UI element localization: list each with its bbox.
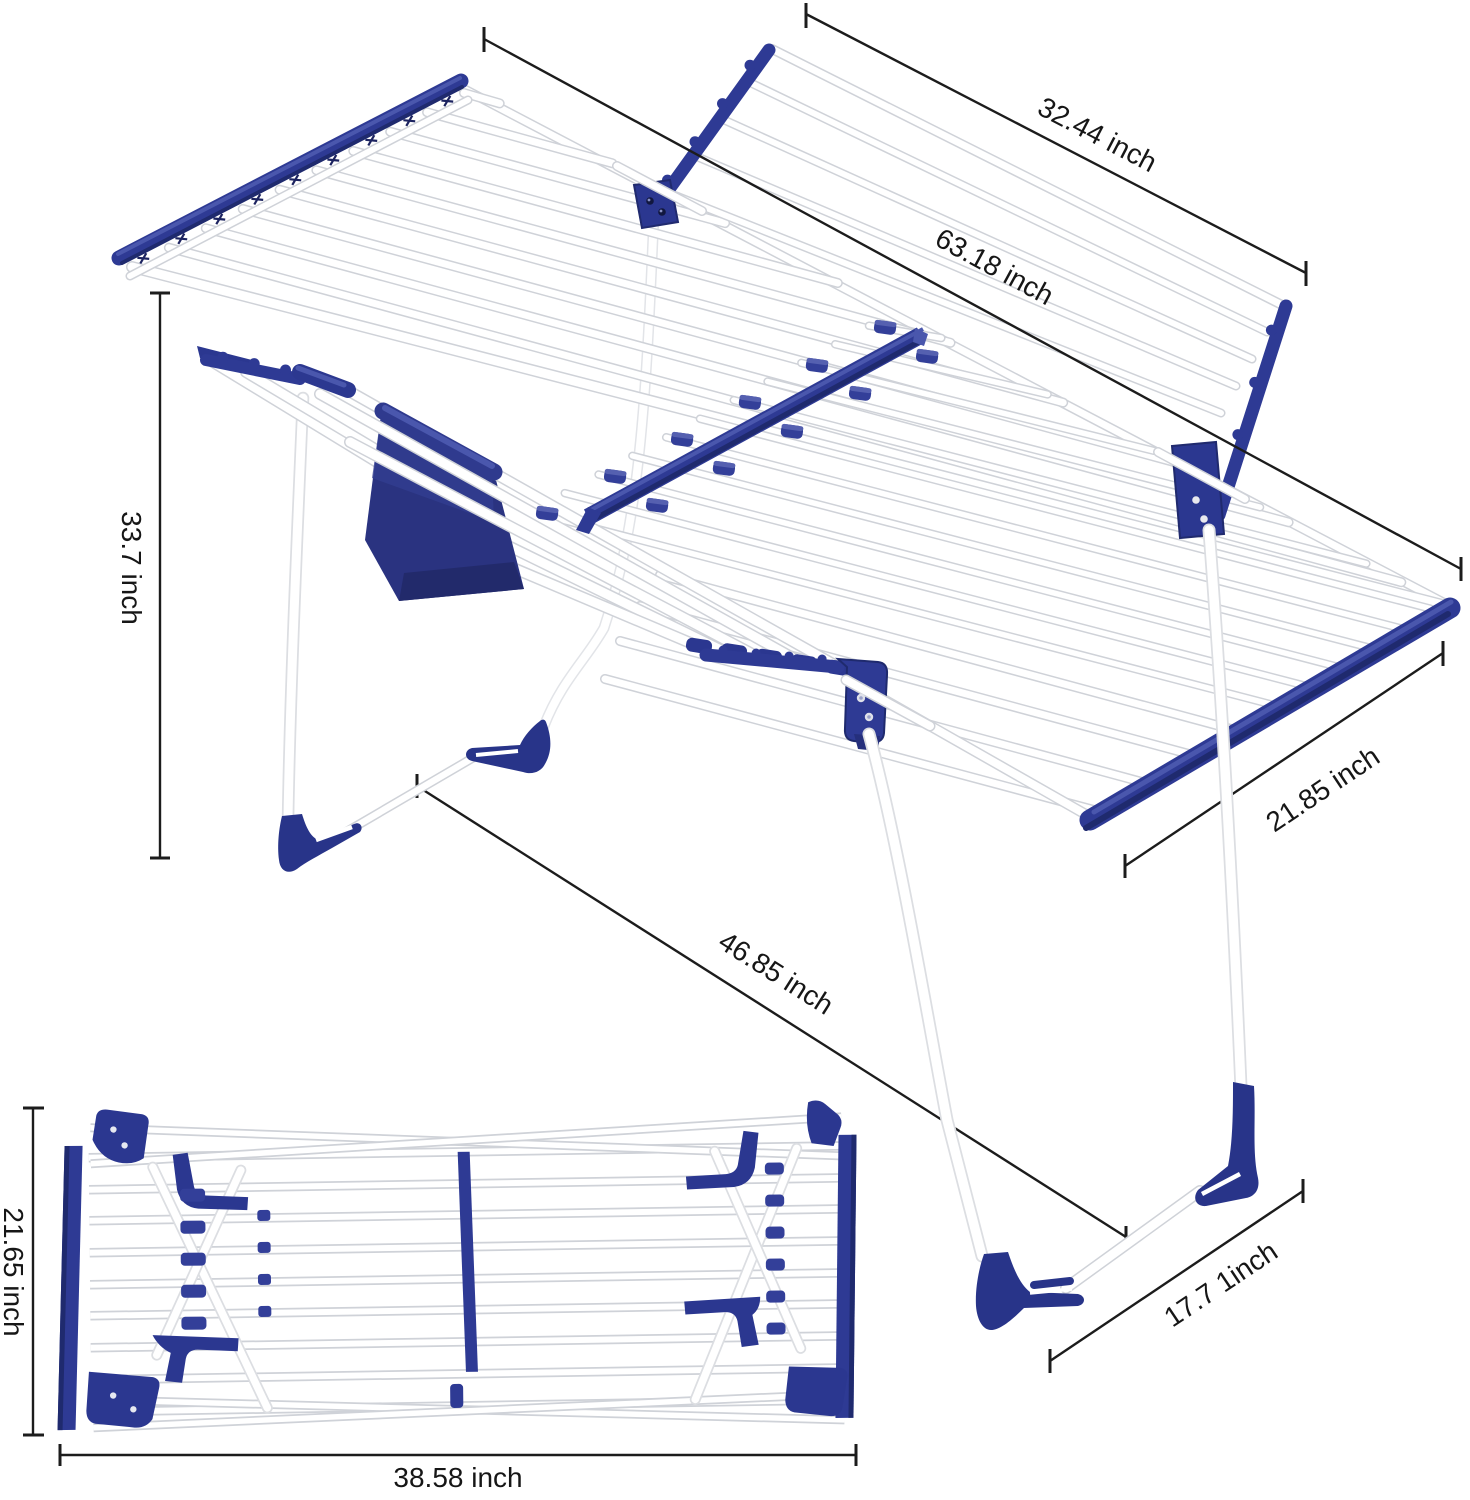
svg-text:38.58 inch: 38.58 inch <box>393 1462 522 1493</box>
svg-text:33.7 inch: 33.7 inch <box>116 511 147 625</box>
svg-text:21.65 inch: 21.65 inch <box>0 1207 29 1336</box>
